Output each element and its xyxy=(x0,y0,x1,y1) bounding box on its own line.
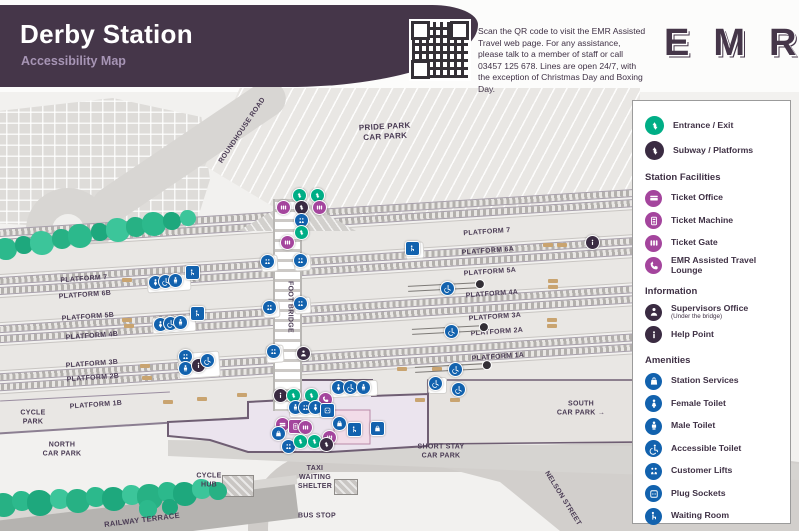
map-marker-services xyxy=(332,416,347,431)
map-marker-lift xyxy=(293,296,308,311)
cycle-hub-shape xyxy=(222,475,254,497)
map-marker-entrance xyxy=(293,434,308,449)
legend-item-label: Help Point xyxy=(671,330,714,340)
legend-item-label: Ticket Gate xyxy=(671,238,718,248)
lift-icon xyxy=(645,463,662,480)
map-area-label: CYCLE PARK xyxy=(20,409,45,427)
ticket-machine-icon xyxy=(645,212,662,229)
legend-item-label: Supervisors Office (Under the bridge) xyxy=(671,304,748,320)
legend-item-label: Station Services xyxy=(671,376,739,386)
map-marker-accessible xyxy=(428,376,443,391)
legend-item-ticket-gate: Ticket Gate xyxy=(645,232,782,255)
supervisor-icon xyxy=(645,304,662,321)
map-area-label: CYCLE HUB xyxy=(196,472,221,490)
legend-item-help: Help Point xyxy=(645,324,782,347)
tree xyxy=(163,212,181,230)
subway-icon xyxy=(645,141,664,160)
map-marker-waiting xyxy=(347,422,362,437)
legend-item-ticket-office: Ticket Office xyxy=(645,187,782,210)
bench-marker xyxy=(557,243,567,247)
waiting-icon xyxy=(645,508,662,525)
map-marker-ticket-gate xyxy=(276,200,291,215)
derby-station-accessibility-map: PRIDE PARK CAR PARKROUNDHOUSE ROADFOOT B… xyxy=(0,0,799,531)
legend-item-plug: Plug Sockets xyxy=(645,483,782,506)
map-marker-accessible xyxy=(448,362,463,377)
map-marker-male xyxy=(356,380,371,395)
map-marker-lift xyxy=(293,253,308,268)
services-icon xyxy=(645,373,662,390)
map-marker-waiting xyxy=(185,265,200,280)
map-marker-services xyxy=(370,421,385,436)
map-marker-lift xyxy=(262,300,277,315)
legend-item-lift: Customer Lifts xyxy=(645,460,782,483)
ticket-gate-icon xyxy=(645,235,662,252)
legend-item-female: Female Toilet xyxy=(645,393,782,416)
legend-section-heading: Information xyxy=(645,286,782,297)
bench-marker xyxy=(237,393,247,397)
map-marker-entrance xyxy=(294,225,309,240)
map-marker-plug xyxy=(320,403,335,418)
map-area-label: FOOT BRIDGE xyxy=(285,281,294,333)
legend-item-label: Subway / Platforms xyxy=(673,146,753,156)
bench-marker xyxy=(548,285,558,289)
legend-item-label: Plug Sockets xyxy=(671,489,726,499)
map-area-label: SHORT STAY CAR PARK xyxy=(418,443,465,461)
map-marker-lift xyxy=(266,344,281,359)
map-marker-services xyxy=(271,426,286,441)
tree xyxy=(142,212,166,236)
bench-marker xyxy=(547,324,557,328)
map-marker-supervisor xyxy=(296,346,311,361)
map-marker-ticket-gate xyxy=(280,235,295,250)
legend-item-ticket-machine: Ticket Machine xyxy=(645,210,782,233)
legend-item-entrance: Entrance / Exit xyxy=(645,113,782,138)
male-icon xyxy=(645,418,662,435)
bench-marker xyxy=(415,398,425,402)
legend-item-label: Customer Lifts xyxy=(671,466,732,476)
bench-marker xyxy=(122,318,132,322)
legend-item-label: Male Toilet xyxy=(671,421,715,431)
bus-shelter-shape xyxy=(334,479,358,495)
legend-item-subway: Subway / Platforms xyxy=(645,138,782,163)
accessible-icon xyxy=(645,440,662,457)
entrance-icon xyxy=(645,116,664,135)
legend-item-sublabel: (Under the bridge) xyxy=(671,314,748,321)
legend-section-heading: Station Facilities xyxy=(645,172,782,183)
legend-item-label: EMR Assisted Travel Lounge xyxy=(671,256,782,275)
map-area-label: SOUTH CAR PARK → xyxy=(557,400,605,418)
map-marker-accessible xyxy=(451,382,466,397)
bench-marker xyxy=(124,324,134,328)
map-area-label: NORTH CAR PARK xyxy=(43,441,82,459)
plug-icon xyxy=(645,485,662,502)
bench-marker xyxy=(140,364,150,368)
map-area-label: PRIDE PARK CAR PARK xyxy=(359,121,412,144)
bench-marker xyxy=(543,243,553,247)
legend-item-supervisor: Supervisors Office (Under the bridge) xyxy=(645,301,782,324)
map-marker-waiting xyxy=(405,241,420,256)
map-marker-accessible xyxy=(440,281,455,296)
bench-marker xyxy=(548,279,558,283)
bench-marker xyxy=(547,318,557,322)
map-marker-accessible xyxy=(200,353,215,368)
tree xyxy=(180,210,196,226)
map-marker-male xyxy=(168,273,183,288)
bench-marker xyxy=(450,398,460,402)
map-marker-male xyxy=(173,315,188,330)
map-area-label: BUS STOP xyxy=(298,513,336,522)
tree xyxy=(68,224,92,248)
legend-item-services: Station Services xyxy=(645,370,782,393)
bench-marker xyxy=(163,400,173,404)
legend-item-label: Entrance / Exit xyxy=(673,121,733,131)
bench-marker xyxy=(197,397,207,401)
bench-marker xyxy=(122,278,132,282)
map-marker-waiting xyxy=(190,306,205,321)
map-marker-help xyxy=(585,235,600,250)
map-marker-ticket-gate xyxy=(312,200,327,215)
legend-item-male: Male Toilet xyxy=(645,415,782,438)
bench-marker xyxy=(142,376,152,380)
legend-section-heading: Amenities xyxy=(645,355,782,366)
legend-item-label: Accessible Toilet xyxy=(671,444,741,454)
legend-item-label: Ticket Machine xyxy=(671,216,733,226)
legend-item-lounge: EMR Assisted Travel Lounge xyxy=(645,255,782,278)
lounge-icon xyxy=(645,257,662,274)
legend-item-accessible: Accessible Toilet xyxy=(645,438,782,461)
bench-marker xyxy=(397,367,407,371)
map-marker-lift xyxy=(260,254,275,269)
legend-item-waiting: Waiting Room xyxy=(645,505,782,528)
ticket-office-icon xyxy=(645,190,662,207)
map-area-label: TAXI WAITING SHELTER xyxy=(298,465,332,491)
legend-item-label: Female Toilet xyxy=(671,399,726,409)
tree xyxy=(27,490,53,516)
female-icon xyxy=(645,395,662,412)
legend-item-label: Ticket Office xyxy=(671,193,723,203)
tree xyxy=(30,231,54,255)
map-marker-subway xyxy=(319,437,334,452)
help-icon xyxy=(645,326,662,343)
map-legend: Entrance / Exit Subway / Platforms Stati… xyxy=(632,100,791,524)
legend-item-label: Waiting Room xyxy=(671,511,729,521)
map-marker-ticket-gate xyxy=(298,420,313,435)
map-marker-accessible xyxy=(444,324,459,339)
